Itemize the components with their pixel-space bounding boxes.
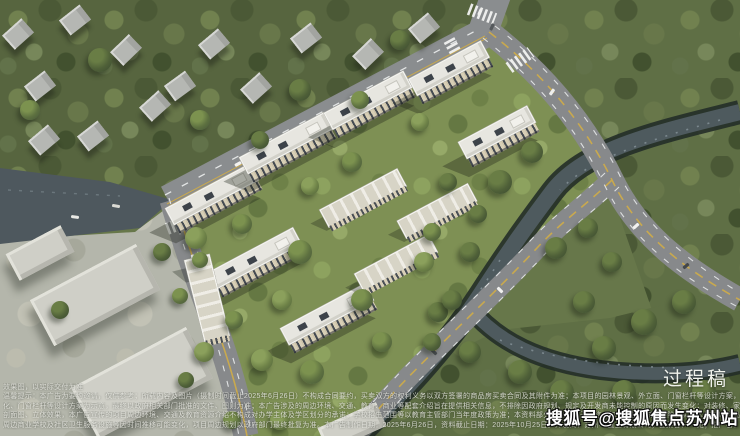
tree-clump	[592, 336, 616, 360]
tree-clump	[460, 242, 480, 262]
warehouse-building	[6, 225, 75, 281]
apartment-tower	[239, 112, 339, 185]
draft-stage-label: 过程稿	[663, 364, 729, 391]
disclaimer-line: 效果图，以实际交付为准	[3, 383, 740, 392]
village-house	[164, 71, 196, 102]
tree-clump	[20, 100, 40, 120]
tree-clump	[251, 131, 269, 149]
tree-clump	[192, 252, 208, 268]
village-house	[24, 71, 56, 102]
tree-clump	[288, 240, 312, 264]
disclaimer-line: 温馨提示：本广告为要约邀请，仅供参考；所载内容及图片（摄制时间截止2025年6月…	[3, 392, 740, 401]
tree-clump	[411, 113, 429, 131]
tree-clump	[351, 289, 373, 311]
village-house	[198, 28, 230, 59]
tree-clump	[88, 48, 112, 72]
tree-clump	[185, 227, 207, 249]
tree-clump	[469, 205, 487, 223]
village-house	[290, 23, 322, 54]
village-house	[59, 5, 91, 36]
tree-clump	[232, 214, 252, 234]
lowrise-row	[319, 169, 406, 228]
village-house	[240, 72, 272, 104]
tree-clump	[631, 309, 657, 335]
tree-clump	[672, 290, 696, 314]
tree-clump	[153, 243, 171, 261]
tree-clump	[442, 290, 462, 310]
tree-clump	[602, 252, 622, 272]
tree-clump	[272, 290, 292, 310]
tree-clump	[225, 311, 243, 329]
tree-clump	[289, 79, 311, 101]
village-house	[28, 124, 60, 155]
tree-clump	[488, 170, 512, 194]
tree-clump	[459, 341, 481, 363]
tree-clump	[301, 177, 319, 195]
village-house	[110, 34, 142, 66]
tree-clump	[578, 218, 598, 238]
apartment-tower	[208, 227, 308, 300]
tree-clump	[251, 349, 273, 371]
tree-clump	[300, 360, 324, 384]
village-house	[2, 18, 34, 50]
apartment-tower	[408, 41, 495, 108]
tree-clump	[423, 333, 441, 351]
village-house	[77, 121, 109, 152]
tree-clump	[190, 110, 210, 130]
aerial-site-plan-render: 效果图，以实际交付为准 温馨提示：本广告为要约邀请，仅供参考；所载内容及图片（摄…	[0, 0, 740, 436]
tree-clump	[521, 141, 543, 163]
tree-clump	[423, 223, 441, 241]
tree-clump	[545, 237, 567, 259]
tree-clump	[194, 342, 214, 362]
tree-clump	[390, 30, 410, 50]
village-house	[352, 38, 384, 70]
tree-clump	[372, 332, 392, 352]
buildings-layer	[0, 0, 740, 436]
tree-clump	[508, 360, 532, 384]
tree-clump	[414, 252, 434, 272]
tree-clump	[51, 301, 69, 319]
village-house	[139, 90, 171, 122]
village-house	[408, 12, 440, 43]
sohu-watermark: 搜狐号@搜狐焦点苏州站	[546, 404, 738, 429]
tree-clump	[573, 291, 595, 313]
tree-clump	[342, 152, 362, 172]
tree-clump	[351, 91, 369, 109]
tree-clump	[172, 288, 188, 304]
tree-clump	[439, 173, 457, 191]
